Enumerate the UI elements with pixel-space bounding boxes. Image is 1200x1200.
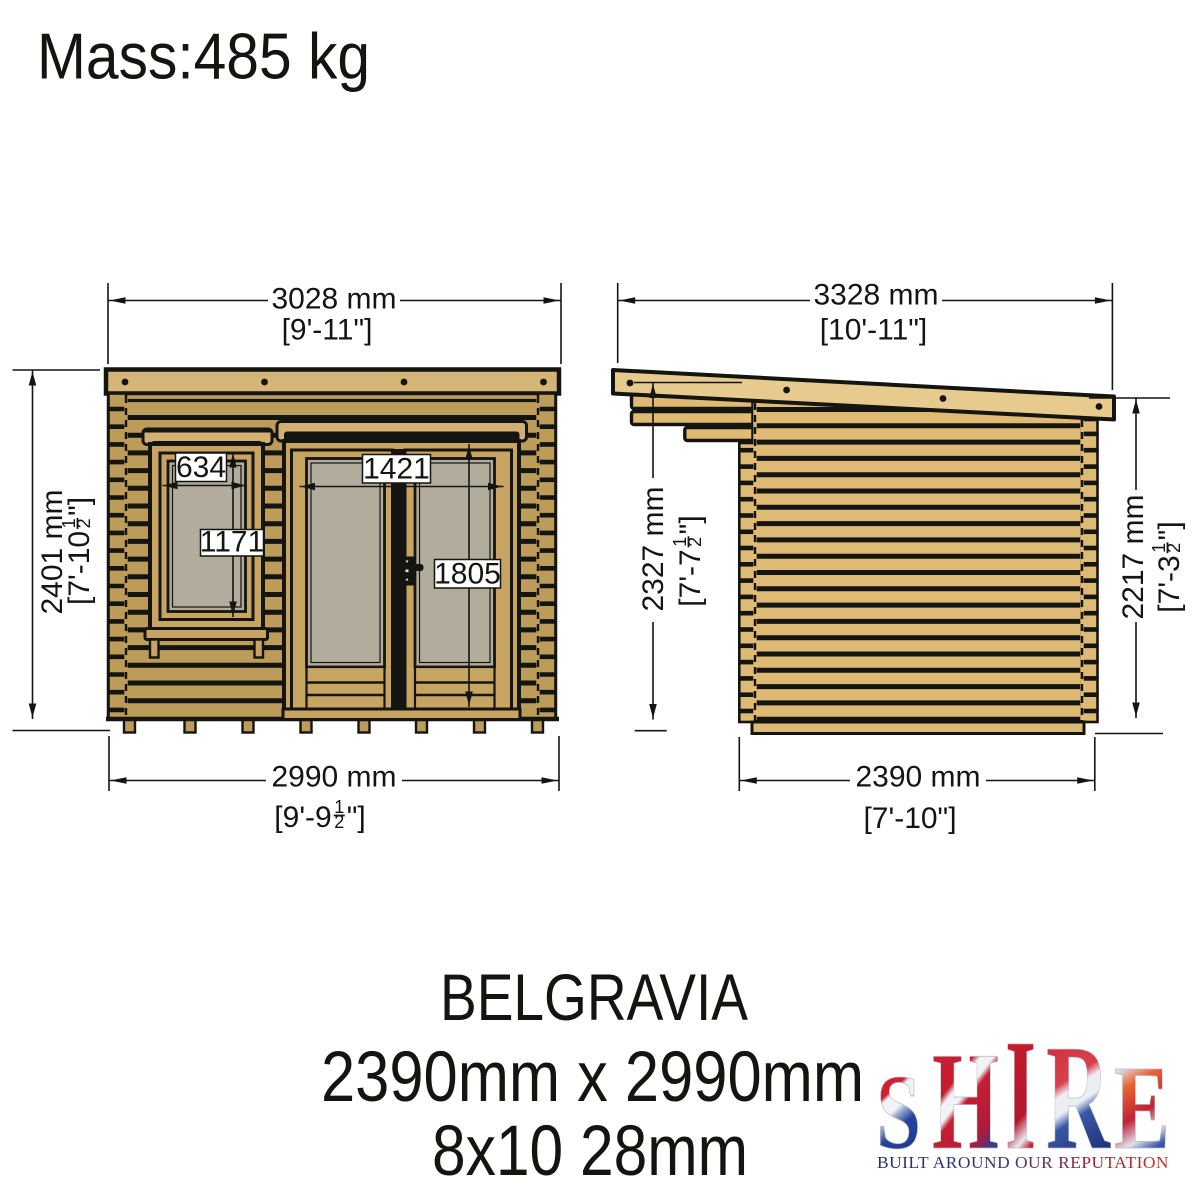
- svg-text:2: 2: [74, 518, 94, 528]
- svg-text:"]: "]: [63, 497, 96, 516]
- svg-text:1171: 1171: [200, 526, 265, 559]
- svg-text:[7'-10"]: [7'-10"]: [863, 802, 956, 835]
- svg-text:8x10 28mm: 8x10 28mm: [432, 1112, 748, 1191]
- svg-text:BELGRAVIA: BELGRAVIA: [440, 960, 748, 1034]
- svg-text:1805: 1805: [434, 558, 501, 591]
- svg-text:Mass:485 kg: Mass:485 kg: [37, 21, 370, 93]
- svg-text:2: 2: [1164, 543, 1184, 553]
- svg-text:BUILT AROUND OUR REPUTATION: BUILT AROUND OUR REPUTATION: [877, 1153, 1169, 1172]
- svg-text:"]: "]: [674, 515, 707, 534]
- svg-text:2: 2: [685, 537, 705, 547]
- svg-text:634: 634: [176, 451, 226, 484]
- svg-text:2990 mm: 2990 mm: [271, 761, 396, 794]
- svg-text:2390mm x 2990mm: 2390mm x 2990mm: [321, 1038, 864, 1117]
- svg-text:[9'-11"]: [9'-11"]: [282, 314, 373, 347]
- svg-text:"]: "]: [1153, 521, 1186, 540]
- svg-text:2390 mm: 2390 mm: [855, 761, 980, 794]
- svg-text:3028 mm: 3028 mm: [271, 282, 396, 315]
- svg-text:3328 mm: 3328 mm: [813, 279, 938, 312]
- svg-text:[7'-10: [7'-10: [63, 531, 96, 605]
- svg-text:[7'-3: [7'-3: [1153, 555, 1186, 612]
- svg-text:2327 mm: 2327 mm: [637, 486, 670, 611]
- svg-text:1421: 1421: [363, 453, 430, 486]
- svg-text:[7'-7: [7'-7: [674, 549, 707, 606]
- svg-text:[9'-9: [9'-9: [274, 801, 331, 834]
- svg-text:"]: "]: [347, 801, 366, 834]
- svg-text:2217 mm: 2217 mm: [1117, 494, 1150, 619]
- svg-text:[10'-11"]: [10'-11"]: [820, 314, 928, 347]
- svg-text:2: 2: [334, 812, 344, 832]
